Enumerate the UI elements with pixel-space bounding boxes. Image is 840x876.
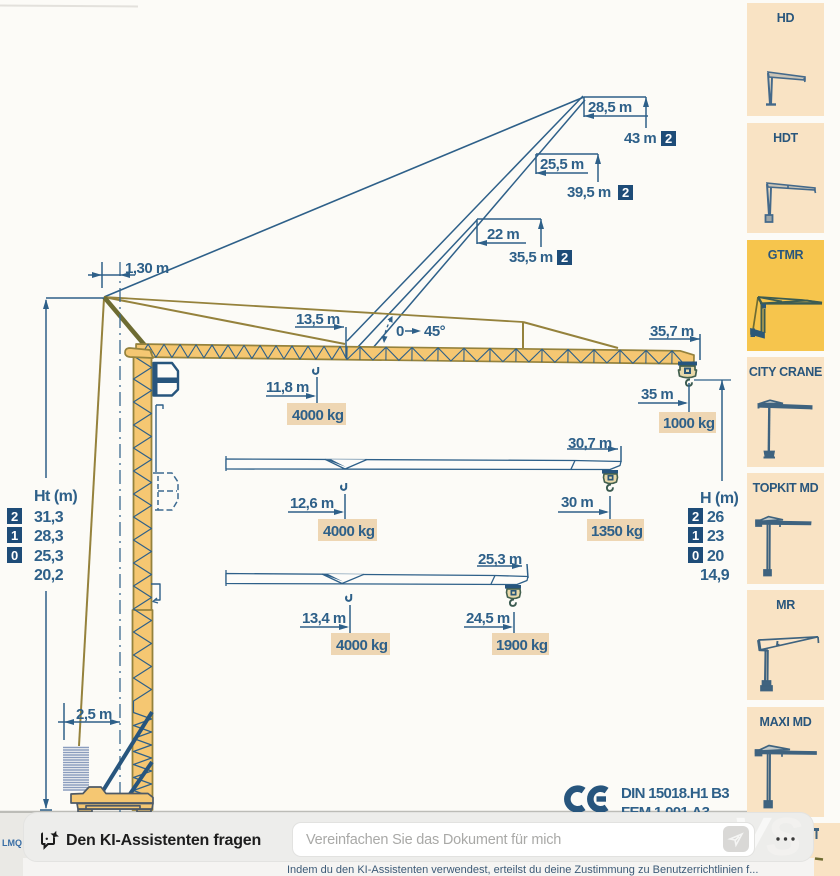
svg-text:13,4 m: 13,4 m <box>302 610 346 627</box>
svg-text:23: 23 <box>707 528 724 545</box>
svg-text:28,3: 28,3 <box>34 528 64 545</box>
svg-text:2: 2 <box>561 250 568 265</box>
svg-text:43 m: 43 m <box>624 130 656 147</box>
svg-text:0: 0 <box>396 323 404 340</box>
svg-text:4000 kg: 4000 kg <box>336 637 388 654</box>
svg-text:35,5 m: 35,5 m <box>509 249 553 266</box>
svg-text:13,5 m: 13,5 m <box>296 311 340 328</box>
svg-text:4000 kg: 4000 kg <box>292 407 344 424</box>
svg-text:24,5 m: 24,5 m <box>466 610 510 627</box>
svg-text:45°: 45° <box>424 323 446 340</box>
svg-text:1: 1 <box>692 528 699 543</box>
svg-text:20,2: 20,2 <box>34 567 64 584</box>
svg-text:35,7 m: 35,7 m <box>650 323 694 340</box>
svg-text:Ht (m): Ht (m) <box>34 488 77 505</box>
svg-text:H (m): H (m) <box>700 490 739 507</box>
svg-text:2: 2 <box>692 509 699 524</box>
svg-text:1350 kg: 1350 kg <box>591 523 643 540</box>
svg-text:4000 kg: 4000 kg <box>323 523 375 540</box>
svg-text:1900 kg: 1900 kg <box>496 637 548 654</box>
svg-text:25,3 m: 25,3 m <box>478 551 522 568</box>
svg-text:2: 2 <box>622 185 629 200</box>
svg-text:20: 20 <box>707 548 724 565</box>
svg-text:30 m: 30 m <box>561 494 593 511</box>
svg-text:DIN 15018.H1 B3: DIN 15018.H1 B3 <box>621 785 729 802</box>
svg-text:30,7 m: 30,7 m <box>568 435 612 452</box>
svg-text:0: 0 <box>11 548 18 563</box>
svg-text:2,5 m: 2,5 m <box>76 706 112 723</box>
svg-text:25,5 m: 25,5 m <box>540 156 584 173</box>
svg-text:1: 1 <box>11 528 18 543</box>
svg-text:2: 2 <box>11 509 18 524</box>
svg-text:1000 kg: 1000 kg <box>663 415 715 432</box>
svg-text:28,5 m: 28,5 m <box>588 99 632 116</box>
svg-text:1,30 m: 1,30 m <box>125 260 169 277</box>
svg-text:12,6 m: 12,6 m <box>290 495 334 512</box>
svg-text:0: 0 <box>692 548 699 563</box>
svg-text:25,3: 25,3 <box>34 548 64 565</box>
svg-text:26: 26 <box>707 509 724 526</box>
svg-text:31,3: 31,3 <box>34 509 64 526</box>
svg-text:22 m: 22 m <box>487 226 519 243</box>
svg-text:39,5 m: 39,5 m <box>567 184 611 201</box>
svg-text:35 m: 35 m <box>641 386 673 403</box>
svg-text:14,9: 14,9 <box>700 567 730 584</box>
svg-text:2: 2 <box>665 131 672 146</box>
svg-text:11,8 m: 11,8 m <box>266 379 309 396</box>
